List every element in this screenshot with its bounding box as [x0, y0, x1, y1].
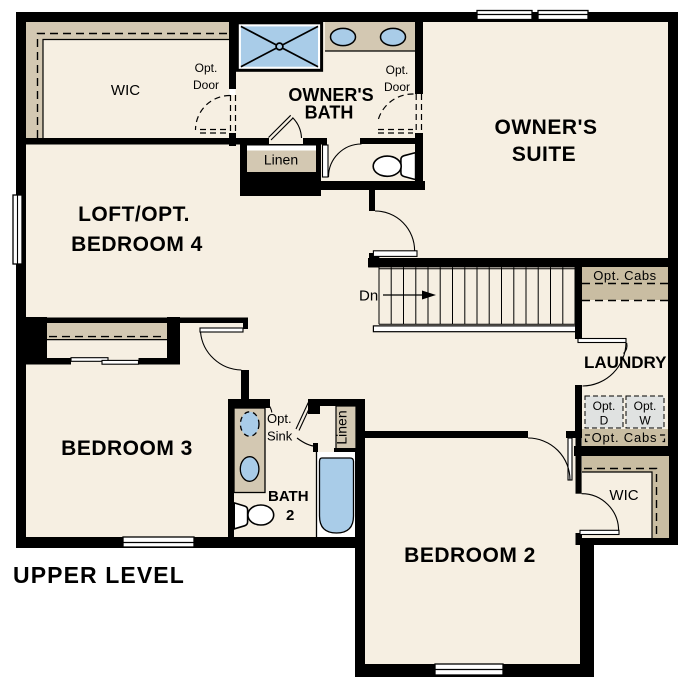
- svg-text:WIC: WIC: [111, 82, 140, 99]
- svg-text:BEDROOM 3: BEDROOM 3: [61, 437, 193, 460]
- svg-text:Linen: Linen: [334, 410, 350, 444]
- svg-text:2: 2: [286, 507, 294, 524]
- svg-text:WIC: WIC: [609, 487, 638, 504]
- svg-text:Opt.: Opt.: [195, 61, 218, 75]
- svg-text:Opt.: Opt.: [267, 411, 292, 426]
- svg-text:Sink: Sink: [267, 429, 293, 444]
- svg-text:Opt.: Opt.: [634, 399, 657, 413]
- svg-text:BEDROOM 4: BEDROOM 4: [71, 233, 203, 256]
- svg-text:Dn: Dn: [359, 288, 378, 305]
- svg-text:Door: Door: [384, 80, 410, 94]
- svg-text:BATH: BATH: [305, 103, 354, 123]
- svg-text:Opt.: Opt.: [593, 399, 616, 413]
- svg-text:LOFT/OPT.: LOFT/OPT.: [78, 203, 190, 226]
- svg-text:UPPER LEVEL: UPPER LEVEL: [13, 562, 185, 588]
- svg-text:BEDROOM 2: BEDROOM 2: [404, 544, 536, 567]
- svg-text:Opt.: Opt.: [386, 63, 409, 77]
- svg-text:BATH: BATH: [268, 488, 309, 505]
- svg-text:Opt. Cabs: Opt. Cabs: [593, 268, 656, 283]
- svg-text:LAUNDRY: LAUNDRY: [584, 353, 667, 372]
- svg-text:D: D: [600, 414, 609, 428]
- svg-text:Opt. Cabs: Opt. Cabs: [592, 430, 658, 445]
- svg-text:Door: Door: [193, 78, 219, 92]
- svg-text:OWNER'S: OWNER'S: [495, 116, 598, 139]
- svg-text:W: W: [639, 414, 651, 428]
- svg-text:Linen: Linen: [264, 152, 298, 168]
- svg-text:SUITE: SUITE: [512, 143, 576, 166]
